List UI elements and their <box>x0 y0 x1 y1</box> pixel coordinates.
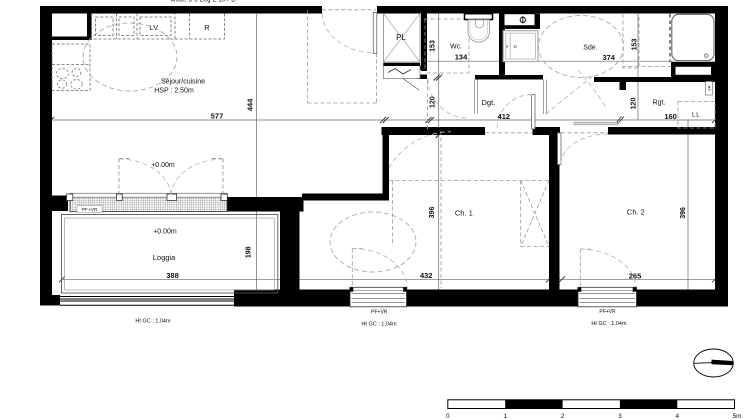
svg-text:396: 396 <box>680 207 687 219</box>
svg-text:134: 134 <box>455 53 468 62</box>
svg-text:432: 432 <box>420 271 433 280</box>
svg-text:HSP : 2.50m: HSP : 2.50m <box>154 88 194 95</box>
svg-text:1: 1 <box>503 413 507 420</box>
svg-text:Wc.: Wc. <box>450 44 462 51</box>
svg-text:153: 153 <box>429 40 436 52</box>
svg-text:Ht GC : 1,04m: Ht GC : 1,04m <box>361 321 397 327</box>
svg-text:388: 388 <box>166 271 179 280</box>
svg-text:4: 4 <box>675 413 679 420</box>
svg-text:3: 3 <box>618 413 622 420</box>
svg-text:PF+VR: PF+VR <box>82 207 98 213</box>
svg-text:R: R <box>204 23 210 32</box>
svg-text:PF+VR: PF+VR <box>599 309 616 315</box>
svg-text:2: 2 <box>561 413 565 420</box>
svg-text:198: 198 <box>246 246 253 258</box>
svg-text:Ch. 2: Ch. 2 <box>627 208 645 217</box>
svg-text:396: 396 <box>429 207 436 219</box>
svg-text:412: 412 <box>498 112 511 121</box>
svg-text:LL: LL <box>692 113 701 119</box>
svg-text:160: 160 <box>664 112 677 121</box>
svg-text:0: 0 <box>446 413 450 420</box>
svg-text:577: 577 <box>211 111 224 120</box>
svg-text:5m: 5m <box>732 413 741 420</box>
svg-text:VR: VR <box>707 85 711 91</box>
svg-text:374: 374 <box>602 53 615 62</box>
svg-text:PF+VR: PF+VR <box>371 310 388 316</box>
svg-text:153: 153 <box>632 39 639 51</box>
svg-text:Sde.: Sde. <box>583 45 597 52</box>
svg-text:Rgt.: Rgt. <box>652 100 665 107</box>
svg-text:Séjour/cuisine: Séjour/cuisine <box>161 79 205 86</box>
svg-text:Ht GC : 1.04m: Ht GC : 1.04m <box>591 321 627 327</box>
svg-text:120: 120 <box>430 96 437 108</box>
svg-text:444: 444 <box>246 98 255 111</box>
svg-text:PL: PL <box>396 33 406 42</box>
svg-text:Dgt.: Dgt. <box>482 98 496 107</box>
svg-text:Ht GC : 1.04m: Ht GC : 1.04m <box>135 318 171 324</box>
svg-text:+0.00m: +0.00m <box>151 162 175 169</box>
svg-text:265: 265 <box>629 272 642 281</box>
svg-text:+0.00m: +0.00m <box>153 229 177 236</box>
svg-text:Ch. 1: Ch. 1 <box>455 209 473 218</box>
svg-text:Loggia: Loggia <box>153 253 176 262</box>
svg-text:120: 120 <box>631 98 638 110</box>
svg-text:Mode 3 3 Log 2 107 B: Mode 3 3 Log 2 107 B <box>170 0 235 4</box>
